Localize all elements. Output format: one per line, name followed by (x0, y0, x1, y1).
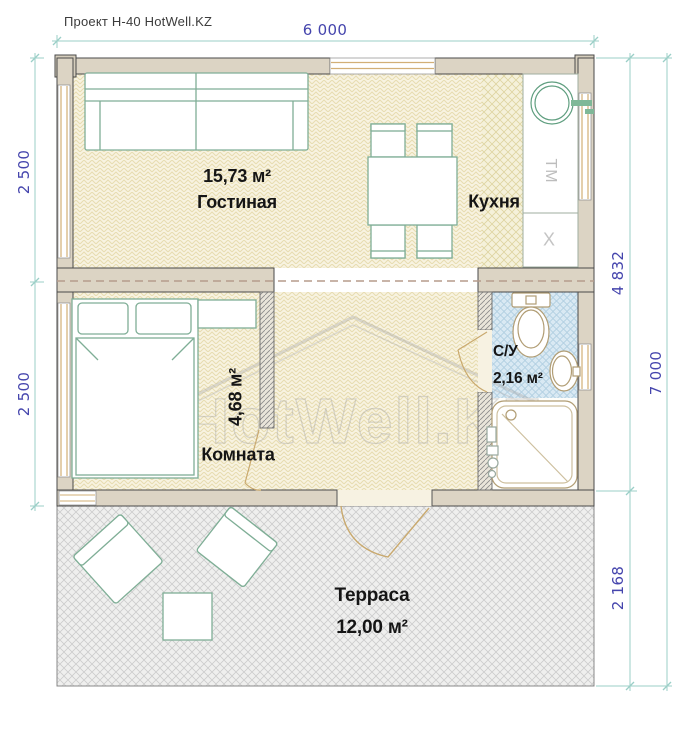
terrace-name: Терраса (335, 580, 410, 612)
wall-bottom-left (57, 490, 337, 506)
floor-plan-page: HotWell.KZ (0, 0, 700, 735)
dim-top-label: 6 000 (303, 21, 347, 39)
window-bottom-bedroom (59, 491, 96, 505)
bedroom-area-label: 4,68 м² (226, 368, 247, 426)
sofa (85, 73, 308, 150)
nightstand (198, 300, 256, 328)
window-top-kitchen (330, 58, 435, 74)
bathroom-name: С/У (493, 338, 543, 365)
wall-bathroom-left-upper (478, 292, 492, 330)
dim-right-house-label: 4 832 (609, 251, 627, 295)
terrace-label: Терраса 12,00 м² (335, 580, 410, 644)
bathroom-door-opening (478, 330, 492, 392)
window-right-bathroom (579, 344, 591, 390)
shower (487, 401, 577, 488)
terrace-table (163, 593, 212, 640)
wall-top-right (435, 58, 594, 74)
bathroom-label: С/У 2,16 м² (493, 338, 543, 392)
window-left-living (58, 85, 70, 258)
floor-kitchen-tile (482, 74, 523, 268)
dining-table-top (368, 157, 457, 225)
dim-line-left (30, 53, 44, 511)
dim-left-lower-label: 2 500 (15, 372, 33, 416)
stove-label: X (543, 230, 555, 251)
blanket (76, 338, 194, 475)
kitchen-label: Кухня (468, 192, 520, 213)
dim-right-terrace-label: 2 168 (609, 566, 627, 610)
entrance-door-opening (337, 490, 432, 506)
bedroom-name-label: Комната (201, 445, 274, 466)
pillow (78, 303, 128, 334)
living-room-label: 15,73 м² Гостиная (197, 163, 277, 215)
wall-bedroom-right (260, 292, 274, 428)
living-room-area: 15,73 м² (197, 163, 277, 189)
dim-left-upper-label: 2 500 (15, 150, 33, 194)
faucet-icon (571, 100, 592, 106)
living-room-name: Гостиная (197, 189, 277, 215)
bathroom-area: 2,16 м² (493, 365, 543, 392)
wall-bottom-right (432, 490, 594, 506)
wall-top-left (57, 58, 330, 74)
plan-title: Проект Н-40 HotWell.KZ (64, 14, 212, 29)
dim-right-total-label: 7 000 (647, 351, 665, 395)
washing-machine-label: ТМ (541, 158, 559, 183)
window-left-bedroom (58, 303, 70, 477)
terrace-area: 12,00 м² (335, 612, 410, 644)
wall-mid-left (57, 268, 274, 292)
bed (72, 299, 198, 478)
wall-mid-right (478, 268, 594, 292)
pillow (136, 303, 191, 334)
